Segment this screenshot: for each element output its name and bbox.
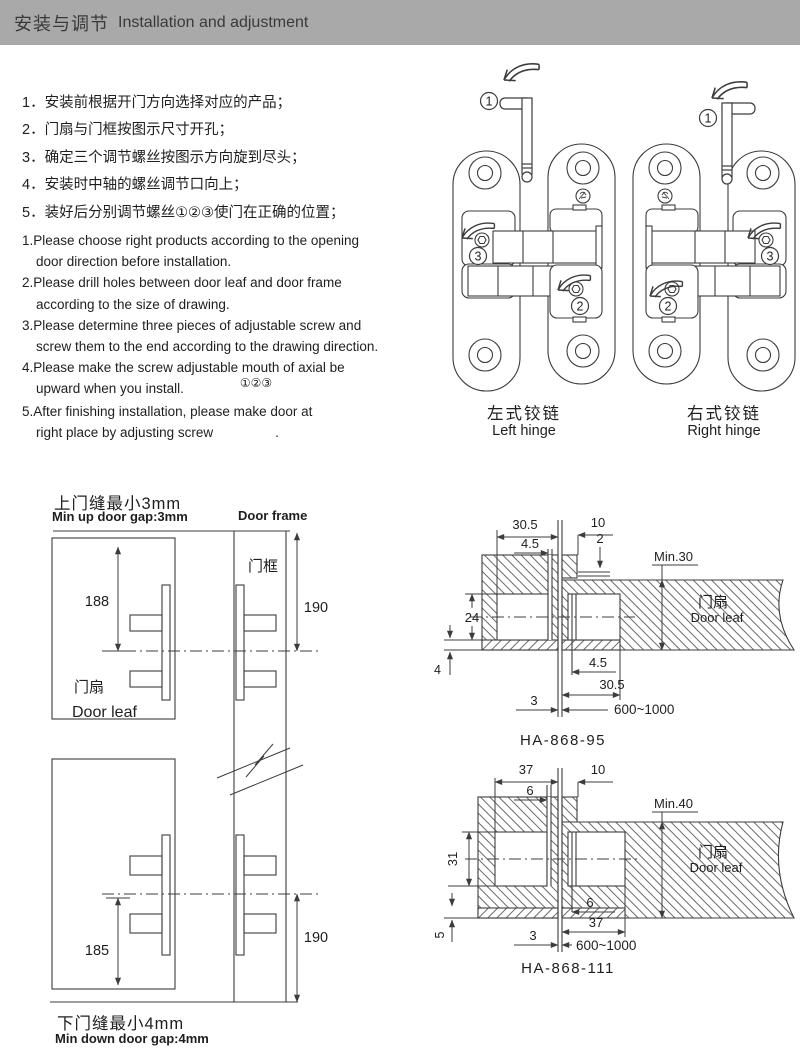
instruction-zh-5: 5．装好后分别调节螺丝①②③使门在正确的位置； <box>22 200 345 227</box>
leaf-notch-tab <box>562 797 577 822</box>
callout-2: 2 <box>660 298 677 315</box>
callout-digits: ①②③ <box>240 376 272 390</box>
door-frame-label-en: Door frame <box>238 508 307 523</box>
mortise-upper-leaf <box>130 585 170 700</box>
rotation-arrow-icon <box>712 82 747 99</box>
svg-text:10: 10 <box>591 515 605 530</box>
door-gap-diagram: 188 190 185 190 门框 门扇 Door leaf <box>40 525 370 1012</box>
svg-text:10: 10 <box>591 762 605 777</box>
page-header: 安装与调节 Installation and adjustment <box>0 0 800 45</box>
gap-title-top-en: Min up door gap:3mm <box>52 509 188 524</box>
svg-text:188: 188 <box>85 594 109 610</box>
instructions-chinese: 1．安装前根据开门方向选择对应的产品； 2．门扇与门框按图示尺寸开孔； 3．确定… <box>22 90 345 227</box>
door-leaf-label-en: Door leaf <box>72 704 137 721</box>
callout-1: 1 <box>481 93 498 110</box>
instruction-zh-4: 4．安装时中轴的螺丝调节口向上； <box>22 172 345 199</box>
instruction-zh-1: 1．安装前根据开门方向选择对应的产品； <box>22 90 345 117</box>
instruction-en-2: 2.Please drill holes between door leaf a… <box>22 272 452 314</box>
leaf-notch-tab <box>562 555 577 578</box>
svg-text:37: 37 <box>519 762 533 777</box>
svg-text:3: 3 <box>767 250 774 264</box>
svg-text:30.5: 30.5 <box>599 677 624 692</box>
dim-top-offset: 4.5 <box>514 536 548 553</box>
svg-text:4.5: 4.5 <box>589 655 607 670</box>
rotation-arrow-icon <box>504 64 539 81</box>
instruction-en-3: 3.Please determine three pieces of adjus… <box>22 315 452 357</box>
dim-notch-width: 10 <box>578 762 613 797</box>
instructions-english: 1.Please choose right products according… <box>22 230 452 443</box>
mortise-upper-frame <box>236 585 276 700</box>
manual-page: 安装与调节 Installation and adjustment 1．安装前根… <box>0 0 800 1048</box>
svg-text:Min.30: Min.30 <box>654 549 693 564</box>
svg-text:2: 2 <box>577 300 584 314</box>
instruction-en-5: 5.After finishing installation, please m… <box>22 401 452 443</box>
svg-text:30.5: 30.5 <box>512 517 537 532</box>
svg-text:3: 3 <box>530 693 537 708</box>
dim-notch-depth: 2 <box>596 531 603 568</box>
callout-2: 2 <box>572 298 589 315</box>
door-frame-label-zh: 门框 <box>248 558 278 575</box>
door-leaf-upper <box>52 538 175 719</box>
left-hinge-label-en: Left hinge <box>446 423 602 439</box>
svg-text:37: 37 <box>589 915 603 930</box>
svg-text:5: 5 <box>433 931 447 938</box>
section-drawing-95: 30.5 4.5 10 2 Min.30 24 <box>430 505 800 757</box>
dim-door-width-range: 600~1000 <box>562 702 674 717</box>
door-leaf-label-zh: 门扇 <box>74 679 104 696</box>
dim-gap: 3 <box>514 928 558 945</box>
svg-text:3: 3 <box>475 250 482 264</box>
break-symbol <box>217 744 303 795</box>
right-hinge-figure: 1 3 2 <box>628 66 800 402</box>
dim-leaf-upper: 188 <box>85 547 130 651</box>
section-caption: HA-868-95 <box>520 732 606 749</box>
dim-bottom-margin: 4 <box>434 625 482 677</box>
instruction-zh-3: 3．确定三个调节螺丝按图示方向旋到尽头； <box>22 145 345 172</box>
door-leaf-label-en: Door leaf <box>691 610 744 625</box>
svg-text:600~1000: 600~1000 <box>576 938 636 953</box>
svg-text:600~1000: 600~1000 <box>614 702 674 717</box>
dim-gap: 3 <box>516 693 558 710</box>
svg-text:31: 31 <box>445 852 460 866</box>
section-caption: HA-868-111 <box>521 960 615 977</box>
dim-frame-upper: 190 <box>297 533 328 651</box>
gap-title-bottom-en: Min down door gap:4mm <box>55 1031 209 1046</box>
door-leaf-label-zh: 门扇 <box>698 844 728 861</box>
door-leaf-lower <box>52 759 175 989</box>
svg-text:185: 185 <box>85 943 109 959</box>
instruction-en-1: 1.Please choose right products according… <box>22 230 452 272</box>
svg-text:6: 6 <box>586 895 593 910</box>
dim-bottom-margin: 5 <box>433 893 478 942</box>
right-hinge-label-zh: 右式铰链 <box>646 400 800 424</box>
page-title-zh: 安装与调节 <box>14 10 109 36</box>
svg-text:2: 2 <box>665 300 672 314</box>
svg-text:190: 190 <box>304 600 328 616</box>
section-drawing-111: 37 6 10 Min.40 31 5 <box>430 760 800 985</box>
callout-3: 3 <box>762 248 779 265</box>
svg-text:4.5: 4.5 <box>521 536 539 551</box>
dim-door-width-range: 600~1000 <box>562 938 636 953</box>
svg-text:Min.40: Min.40 <box>654 796 693 811</box>
mortise-lower-leaf <box>130 835 170 955</box>
svg-text:1: 1 <box>486 95 493 109</box>
door-leaf-label-zh: 门扇 <box>698 594 728 611</box>
door-leaf-label-en: Door leaf <box>690 860 743 875</box>
dim-bottom-offset: 4.5 <box>572 655 616 672</box>
svg-text:2: 2 <box>596 531 603 546</box>
frame-wall-strip <box>478 908 558 918</box>
left-hinge-label-zh: 左式铰链 <box>446 400 602 424</box>
instruction-zh-2: 2．门扇与门框按图示尺寸开孔； <box>22 117 345 144</box>
leaf-wall-strip <box>562 640 620 650</box>
right-hinge-label-en: Right hinge <box>646 423 800 439</box>
callout-3: 3 <box>470 248 487 265</box>
callout-1: 1 <box>700 110 717 127</box>
mortise-lower-frame <box>236 835 276 955</box>
svg-text:24: 24 <box>465 610 479 625</box>
instruction-en-4: 4.Please make the screw adjustable mouth… <box>22 357 452 400</box>
dim-leaf-lower: 185 <box>85 898 130 985</box>
left-hinge-figure: 1 3 2 <box>448 66 620 402</box>
svg-text:6: 6 <box>526 783 533 798</box>
svg-text:190: 190 <box>304 930 328 946</box>
svg-text:3: 3 <box>529 928 536 943</box>
svg-text:4: 4 <box>434 663 441 677</box>
svg-text:1: 1 <box>705 112 712 126</box>
frame-wall-strip <box>482 640 558 650</box>
page-title-en: Installation and adjustment <box>118 14 308 32</box>
dim-frame-lower: 190 <box>297 894 328 1002</box>
